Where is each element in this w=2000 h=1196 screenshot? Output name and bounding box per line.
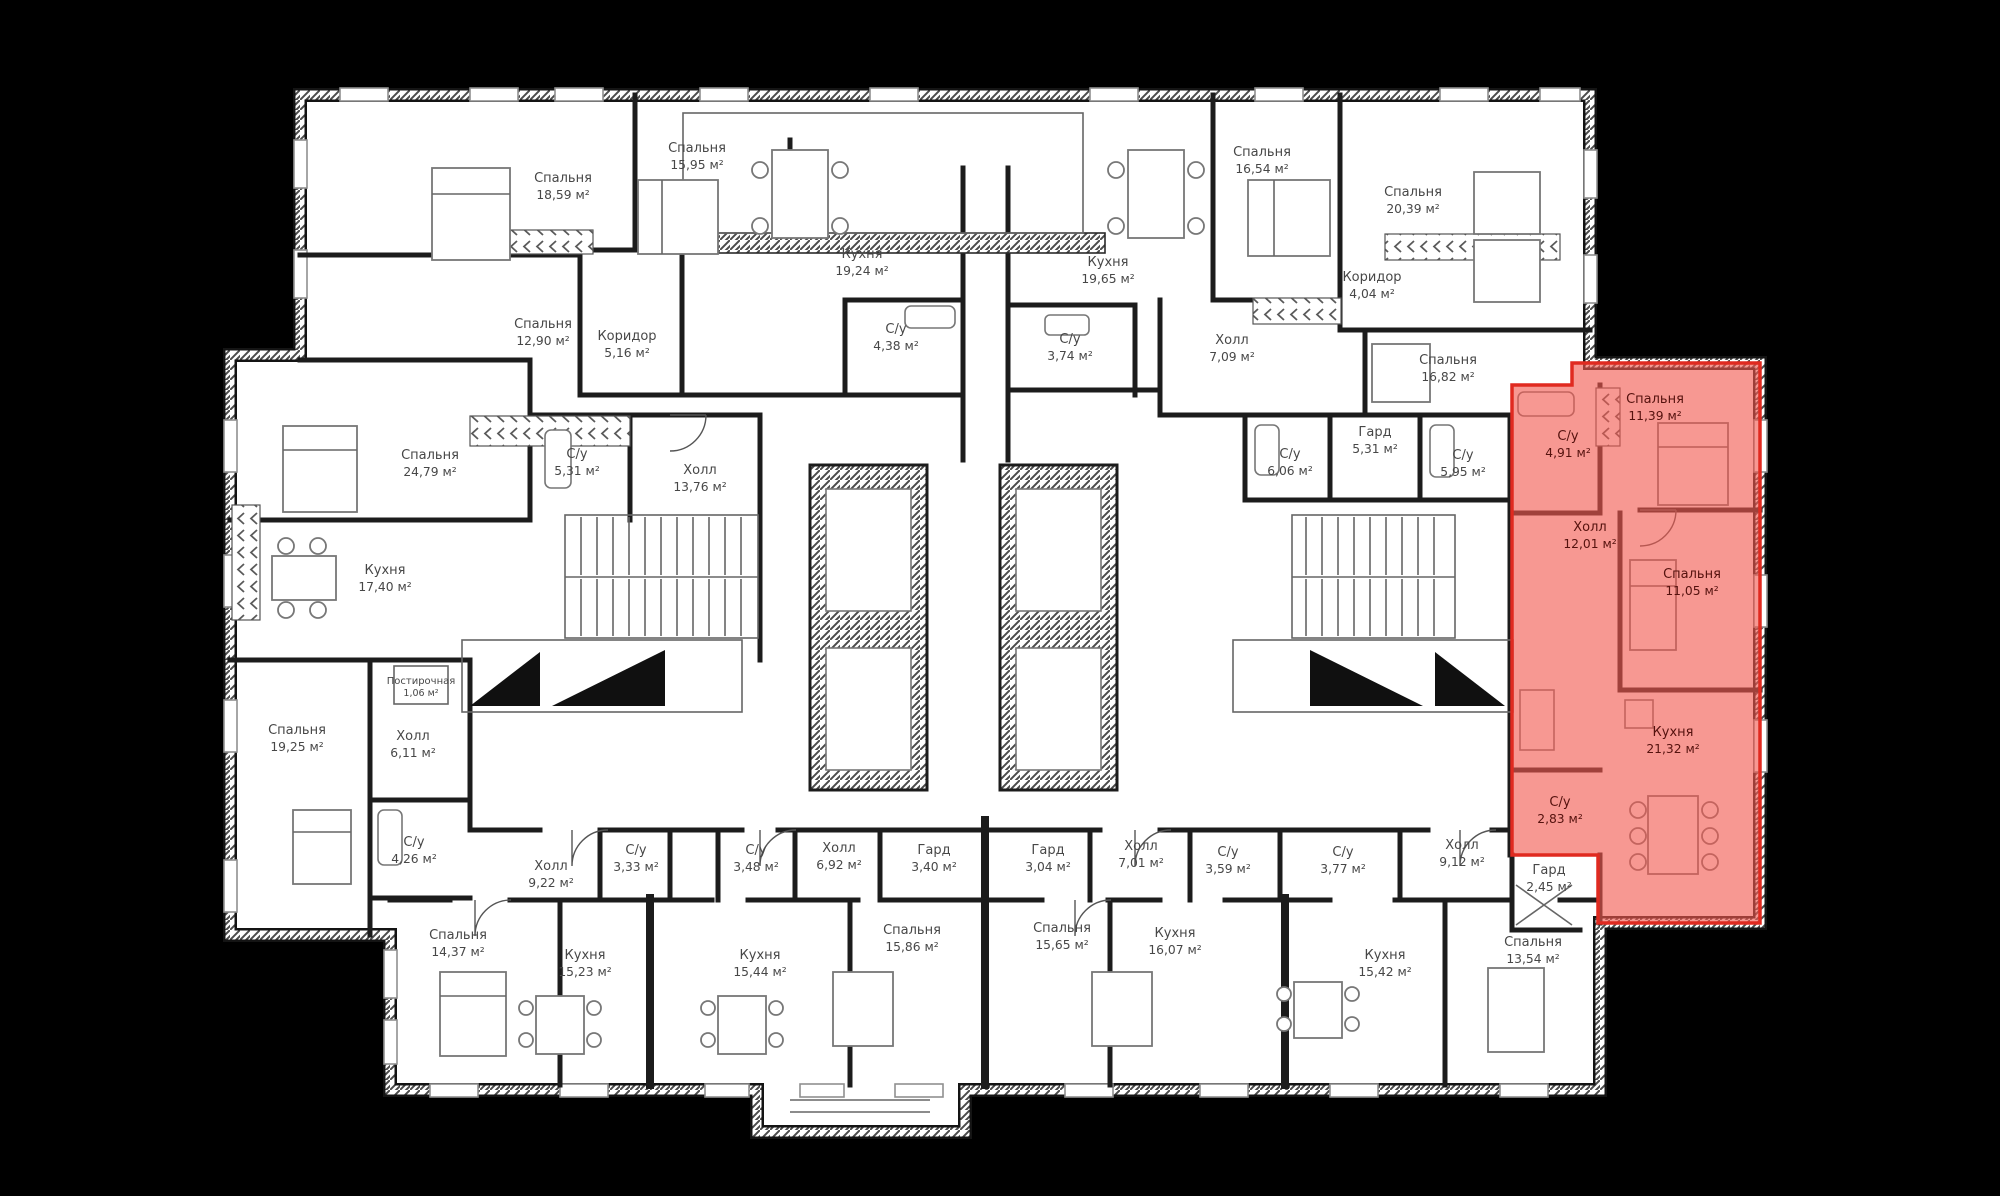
floor-plan-page: Спальня18,59 м²Спальня15,95 м²Кухня19,24… <box>0 0 2000 1196</box>
floor-plan: Спальня18,59 м²Спальня15,95 м²Кухня19,24… <box>0 0 2000 1196</box>
